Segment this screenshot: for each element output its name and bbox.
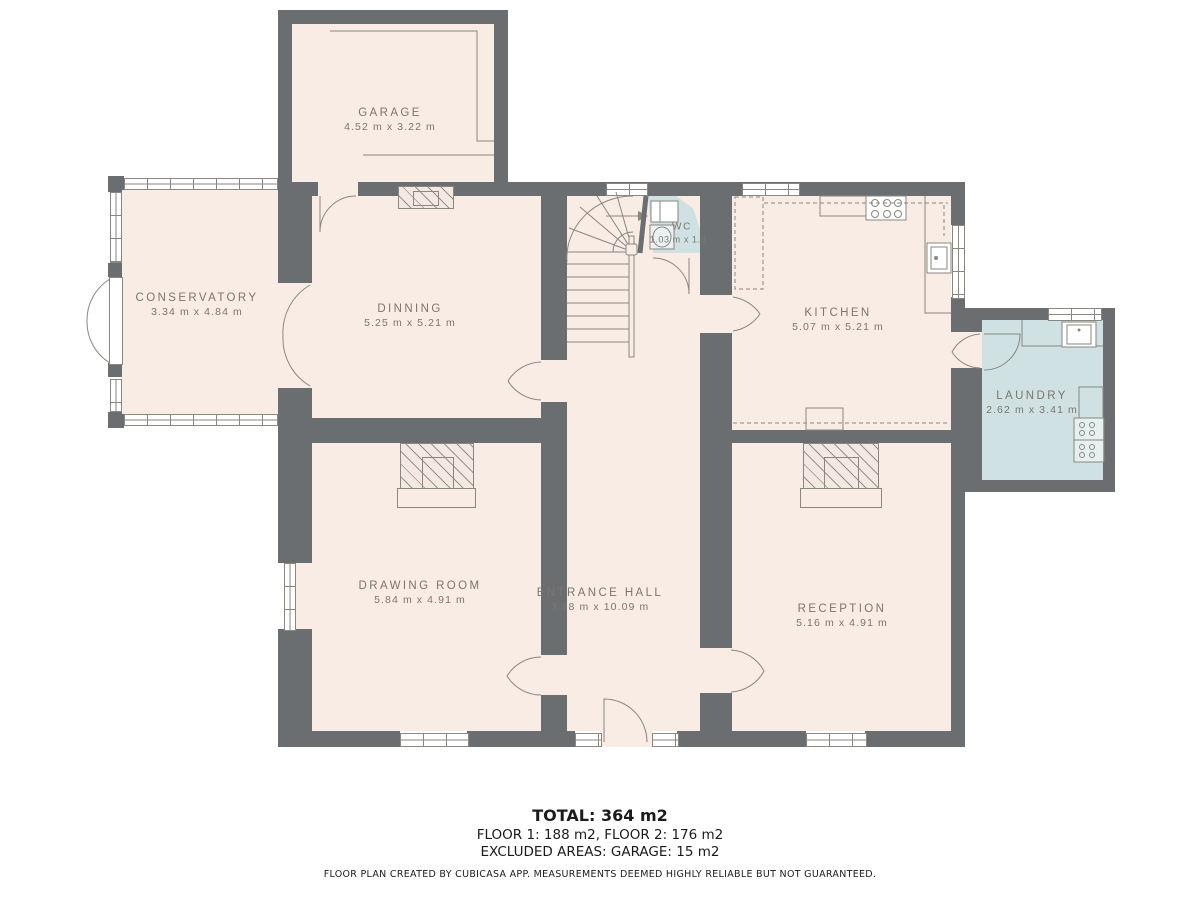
plan-linework — [0, 0, 1200, 900]
door-arc-wc — [653, 258, 689, 294]
room-label-laundry: LAUNDRY 2.62 m x 3.41 m — [986, 390, 1078, 416]
room-label-entrance-hall: ENTRANCE HALL 3.88 m x 10.09 m — [537, 587, 663, 613]
room-name: RECEPTION — [796, 603, 888, 615]
room-label-conservatory: CONSERVATORY 3.34 m x 4.84 m — [136, 292, 259, 318]
room-name: CONSERVATORY — [136, 292, 259, 304]
garage-door-line — [330, 31, 494, 155]
room-label-drawing-room: DRAWING ROOM 5.84 m x 4.91 m — [359, 580, 482, 606]
room-name: ENTRANCE HALL — [537, 587, 663, 599]
wc-stairs-divider — [640, 196, 646, 253]
room-name: KITCHEN — [792, 307, 884, 319]
room-dims: 3.88 m x 10.09 m — [537, 601, 663, 613]
room-dims: 5.25 m x 5.21 m — [364, 317, 456, 329]
room-name: DINNING — [364, 303, 456, 315]
room-dims: 3.34 m x 4.84 m — [136, 306, 259, 318]
floor-areas-text: FLOOR 1: 188 m2, FLOOR 2: 176 m2 — [0, 827, 1200, 843]
door-arc-garage-dinning — [320, 196, 356, 232]
room-label-kitchen: KITCHEN 5.07 m x 5.21 m — [792, 307, 884, 333]
door-arc-hall-reception — [731, 650, 764, 692]
door-arc-conservatory-ext — [87, 279, 110, 363]
door-arc-dinning-hall — [508, 362, 541, 400]
room-name: WC — [658, 222, 707, 233]
wc-sink — [651, 201, 660, 222]
laundry-dryer — [1074, 440, 1104, 462]
door-arc-front — [604, 699, 647, 742]
room-dims: 5.07 m x 5.21 m — [792, 321, 884, 333]
room-label-reception: RECEPTION 5.16 m x 4.91 m — [796, 603, 888, 629]
kitchen-counter-left — [820, 196, 866, 216]
floor-plan: GARAGE 4.52 m x 3.22 m CONSERVATORY 3.34… — [0, 0, 1200, 900]
disclaimer-text: FLOOR PLAN CREATED BY CUBICASA APP. MEAS… — [0, 869, 1200, 880]
stairs-fan — [567, 192, 633, 252]
room-dims: 4.52 m x 3.22 m — [344, 121, 436, 133]
room-name: LAUNDRY — [986, 390, 1078, 402]
stairs-treads — [567, 264, 631, 342]
door-arc-hall-kitchen — [733, 297, 760, 331]
room-name: DRAWING ROOM — [359, 580, 482, 592]
laundry-washer — [1074, 418, 1104, 440]
excluded-areas-text: EXCLUDED AREAS: GARAGE: 15 m2 — [0, 844, 1200, 860]
laundry-cabinet — [1079, 387, 1103, 418]
stairs-newel — [626, 244, 637, 255]
room-dims: 5.84 m x 4.91 m — [359, 594, 482, 606]
kitchen-island-unit — [806, 408, 843, 430]
door-arc-kitchen-laundry — [952, 334, 980, 368]
door-arc-conservatory-int — [283, 285, 310, 386]
room-dims: 2.62 m x 3.41 m — [986, 404, 1078, 416]
room-name: GARAGE — [344, 107, 436, 119]
room-dims: 5.16 m x 4.91 m — [796, 617, 888, 629]
room-label-garage: GARAGE 4.52 m x 3.22 m — [344, 107, 436, 133]
kitchen-cabinet-dashed — [764, 203, 948, 236]
door-arc-laundry — [984, 334, 1020, 370]
door-arc-drawing-hall — [507, 657, 541, 695]
total-area-text: TOTAL: 364 m2 — [0, 806, 1200, 825]
room-label-wc: WC 1.03 m x 1.3 — [658, 222, 707, 245]
room-dims: 1.03 m x 1.3 — [650, 235, 707, 245]
kitchen-tall-cabinet — [735, 197, 763, 289]
room-label-dinning: DINNING 5.25 m x 5.21 m — [364, 303, 456, 329]
